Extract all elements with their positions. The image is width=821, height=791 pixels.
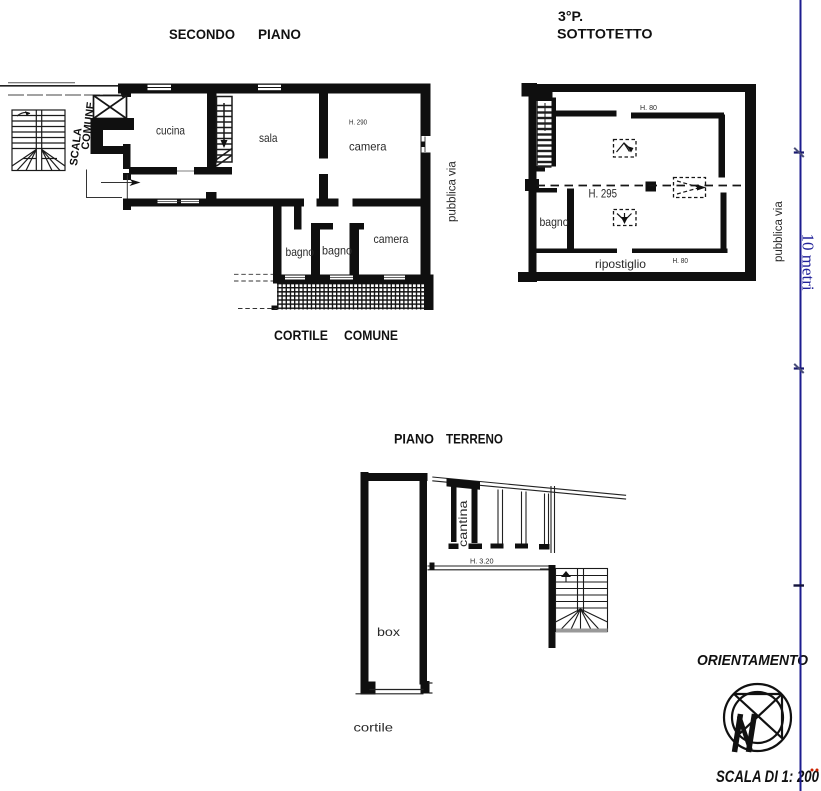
svg-text:cantina: cantina: [456, 500, 470, 547]
svg-text:H. 80: H. 80: [640, 103, 657, 112]
svg-text:bagno: bagno: [322, 244, 352, 258]
svg-text:COMUNE: COMUNE: [344, 327, 398, 343]
svg-text:3°P.: 3°P.: [558, 8, 583, 24]
svg-text:camera: camera: [349, 140, 387, 154]
svg-text:box: box: [377, 625, 400, 639]
svg-text:bagno: bagno: [540, 215, 569, 229]
svg-text:cortile: cortile: [354, 721, 394, 735]
svg-text:10 metri: 10 metri: [799, 234, 818, 291]
svg-text:PIANO: PIANO: [258, 26, 301, 42]
svg-text:SCALA DI 1: 200: SCALA DI 1: 200: [716, 768, 820, 786]
svg-text:TERRENO: TERRENO: [446, 431, 503, 447]
svg-text:pubblica via: pubblica via: [773, 201, 785, 262]
svg-text:ORIENTAMENTO: ORIENTAMENTO: [697, 652, 808, 669]
svg-text:PIANO: PIANO: [394, 431, 434, 447]
svg-text:cucina: cucina: [156, 124, 185, 138]
svg-text:ripostiglio: ripostiglio: [595, 257, 646, 271]
svg-text:SECONDO: SECONDO: [169, 26, 235, 42]
svg-text:H. 295: H. 295: [589, 187, 618, 201]
svg-text:sala: sala: [259, 131, 278, 145]
svg-text:CORTILE: CORTILE: [274, 327, 328, 343]
svg-text:H. 80: H. 80: [673, 256, 689, 265]
svg-text:pubblica via: pubblica via: [447, 161, 459, 222]
svg-text:camera: camera: [374, 232, 409, 246]
svg-text:H. 290: H. 290: [349, 118, 367, 127]
svg-text:bagno: bagno: [286, 245, 315, 259]
svg-text:H. 3.20: H. 3.20: [470, 557, 494, 566]
svg-text:SOTTOTETTO: SOTTOTETTO: [557, 26, 653, 42]
